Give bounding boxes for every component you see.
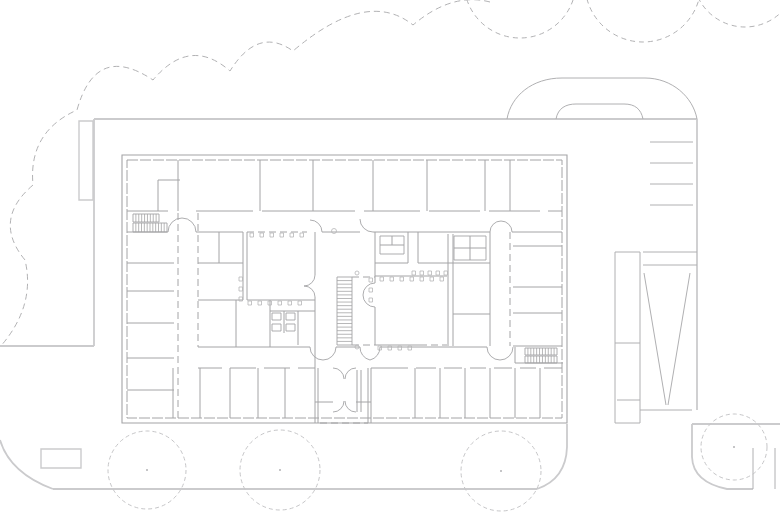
site-details — [507, 78, 775, 489]
fixtures — [272, 236, 486, 331]
tree-circles-top — [464, 0, 780, 42]
building-dashed-walls — [178, 213, 510, 423]
building-shell — [122, 155, 567, 423]
door-swings — [168, 218, 513, 412]
floor-plan-drawing — [0, 0, 780, 512]
tree-canopy — [0, 0, 490, 347]
tree-circles-ground — [108, 414, 767, 511]
stairs — [133, 214, 557, 363]
site-boundary — [0, 119, 780, 489]
site-plan-canvas — [0, 0, 780, 512]
